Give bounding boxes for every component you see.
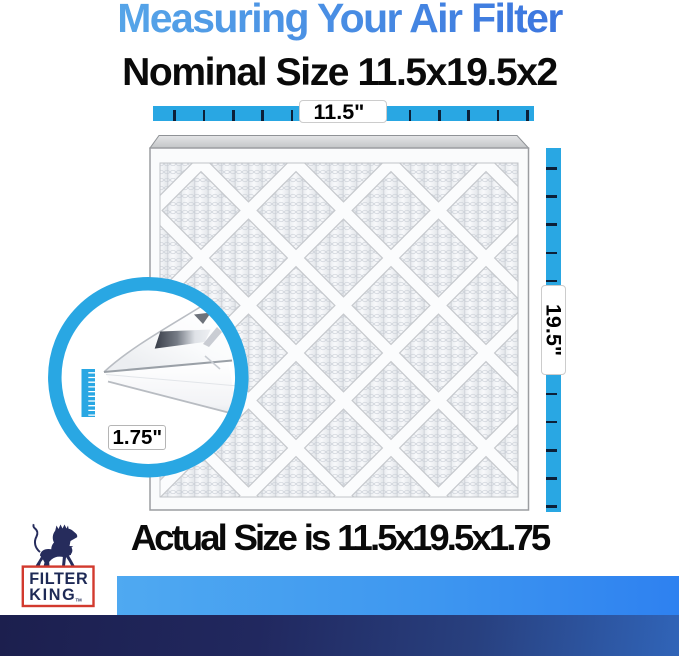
- svg-text:FILTER: FILTER: [29, 570, 88, 588]
- svg-text:KING: KING: [29, 586, 76, 604]
- svg-text:TM: TM: [76, 598, 83, 603]
